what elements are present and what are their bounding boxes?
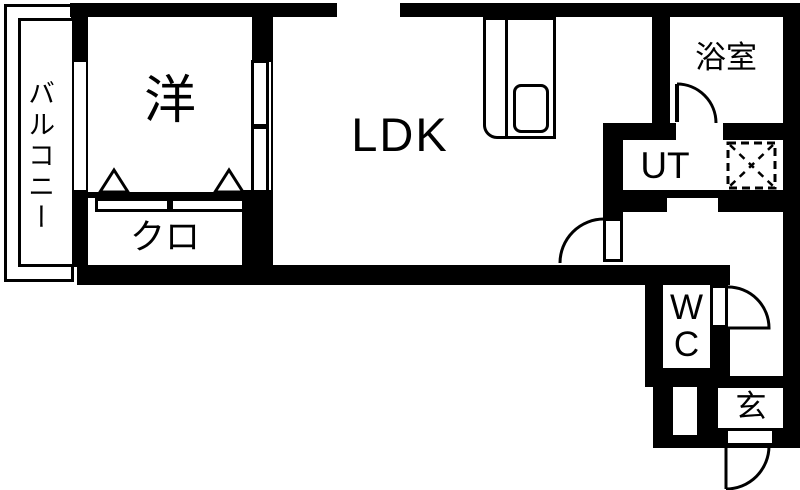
- closet-marker-triangle-right: [215, 170, 243, 192]
- wc-label-line-w: W: [670, 290, 703, 327]
- door-arc-entrance: [726, 446, 769, 489]
- western-room-label: 洋: [120, 72, 220, 130]
- wc-label-line-c: C: [674, 327, 699, 364]
- floor-plan: バルコニー 洋 LDK クロ 浴室 UT W C 玄: [0, 0, 800, 490]
- closet-marker-triangle-left: [100, 170, 128, 192]
- utility-label: UT: [622, 144, 708, 188]
- entrance-label: 玄: [724, 386, 778, 428]
- door-arc-ldk: [560, 219, 604, 263]
- door-arc-bathroom: [677, 84, 716, 123]
- bathroom-label: 浴室: [672, 38, 780, 78]
- wc-label: W C: [663, 287, 710, 367]
- closet-label: クロ: [105, 214, 225, 262]
- balcony-label: バルコニー: [20, 52, 58, 260]
- ldk-label: LDK: [320, 106, 480, 164]
- door-arc-wc: [728, 287, 769, 328]
